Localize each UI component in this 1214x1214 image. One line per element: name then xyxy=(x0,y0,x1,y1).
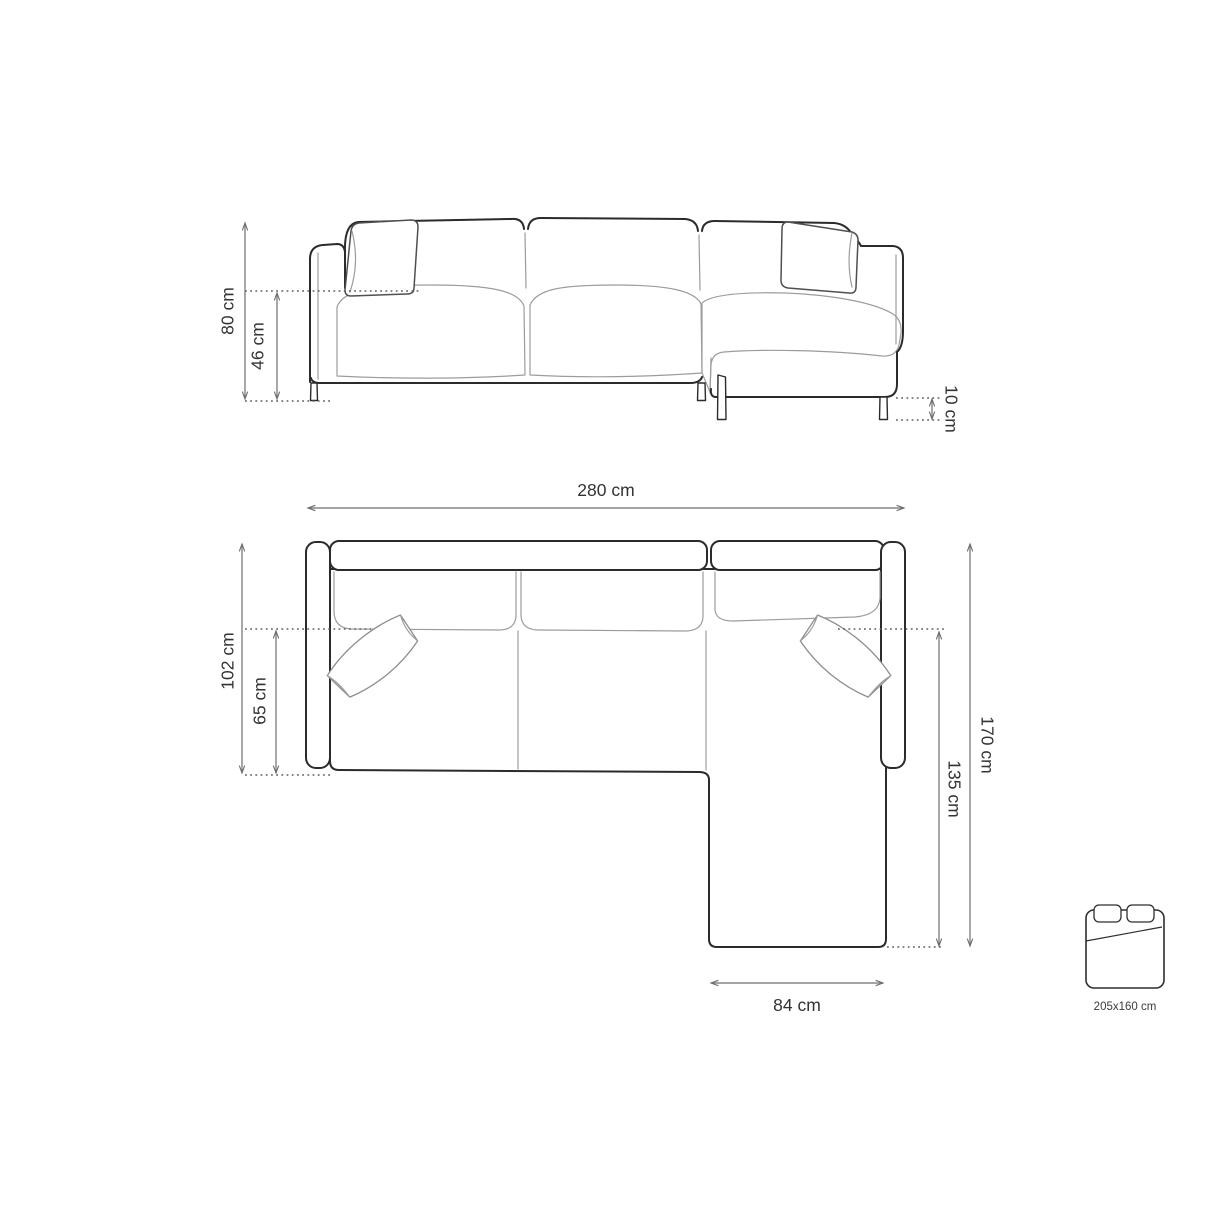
sofa-dimension-diagram: 80 cm 46 cm 10 cm xyxy=(0,0,1214,1214)
sleeping-area-label: 205x160 cm xyxy=(1094,1001,1157,1013)
front-seat-height-label: 46 cm xyxy=(248,322,268,370)
top-body-outline xyxy=(330,569,886,947)
front-backrest-seam-right xyxy=(699,235,700,290)
front-pillow-left xyxy=(345,220,418,296)
front-total-height-label: 80 cm xyxy=(218,287,238,335)
front-pillow-right xyxy=(781,222,858,293)
sleeping-area-icon: 205x160 cm xyxy=(1086,905,1164,1013)
top-left-arm xyxy=(306,542,330,768)
front-seat-cushion-left xyxy=(337,285,525,378)
front-leg-height-label: 10 cm xyxy=(941,385,961,433)
top-seat-depth-label: 65 cm xyxy=(250,677,270,725)
top-view: 280 cm 102 cm 65 cm 135 cm 170 cm 84 cm xyxy=(218,480,998,1015)
front-view: 80 cm 46 cm 10 cm xyxy=(218,218,962,433)
top-total-width-label: 280 cm xyxy=(577,480,634,500)
front-backrest-seam-left xyxy=(525,233,526,288)
top-chaise-width-label: 84 cm xyxy=(773,995,821,1015)
bed-pillow-left-icon xyxy=(1094,905,1121,922)
top-backrest-left xyxy=(330,541,707,570)
bed-pillow-right-icon xyxy=(1127,905,1154,922)
front-leg-left xyxy=(311,383,318,401)
top-right-arm xyxy=(881,542,905,768)
diagram-svg: 80 cm 46 cm 10 cm xyxy=(0,0,1214,1214)
top-total-depth-label: 102 cm xyxy=(218,632,238,689)
front-leg-chaise-left xyxy=(718,375,727,420)
front-seat-cushion-right xyxy=(530,285,702,377)
front-backrest-outline xyxy=(345,218,853,252)
top-chaise-depth-label: 135 cm xyxy=(944,760,964,817)
front-chaise-seat xyxy=(702,293,901,392)
top-chaise-depth-total-label: 170 cm xyxy=(977,716,997,773)
front-leg-chaise-right xyxy=(880,397,888,420)
top-backrest-right xyxy=(711,541,884,570)
front-leg-mid xyxy=(698,383,706,401)
